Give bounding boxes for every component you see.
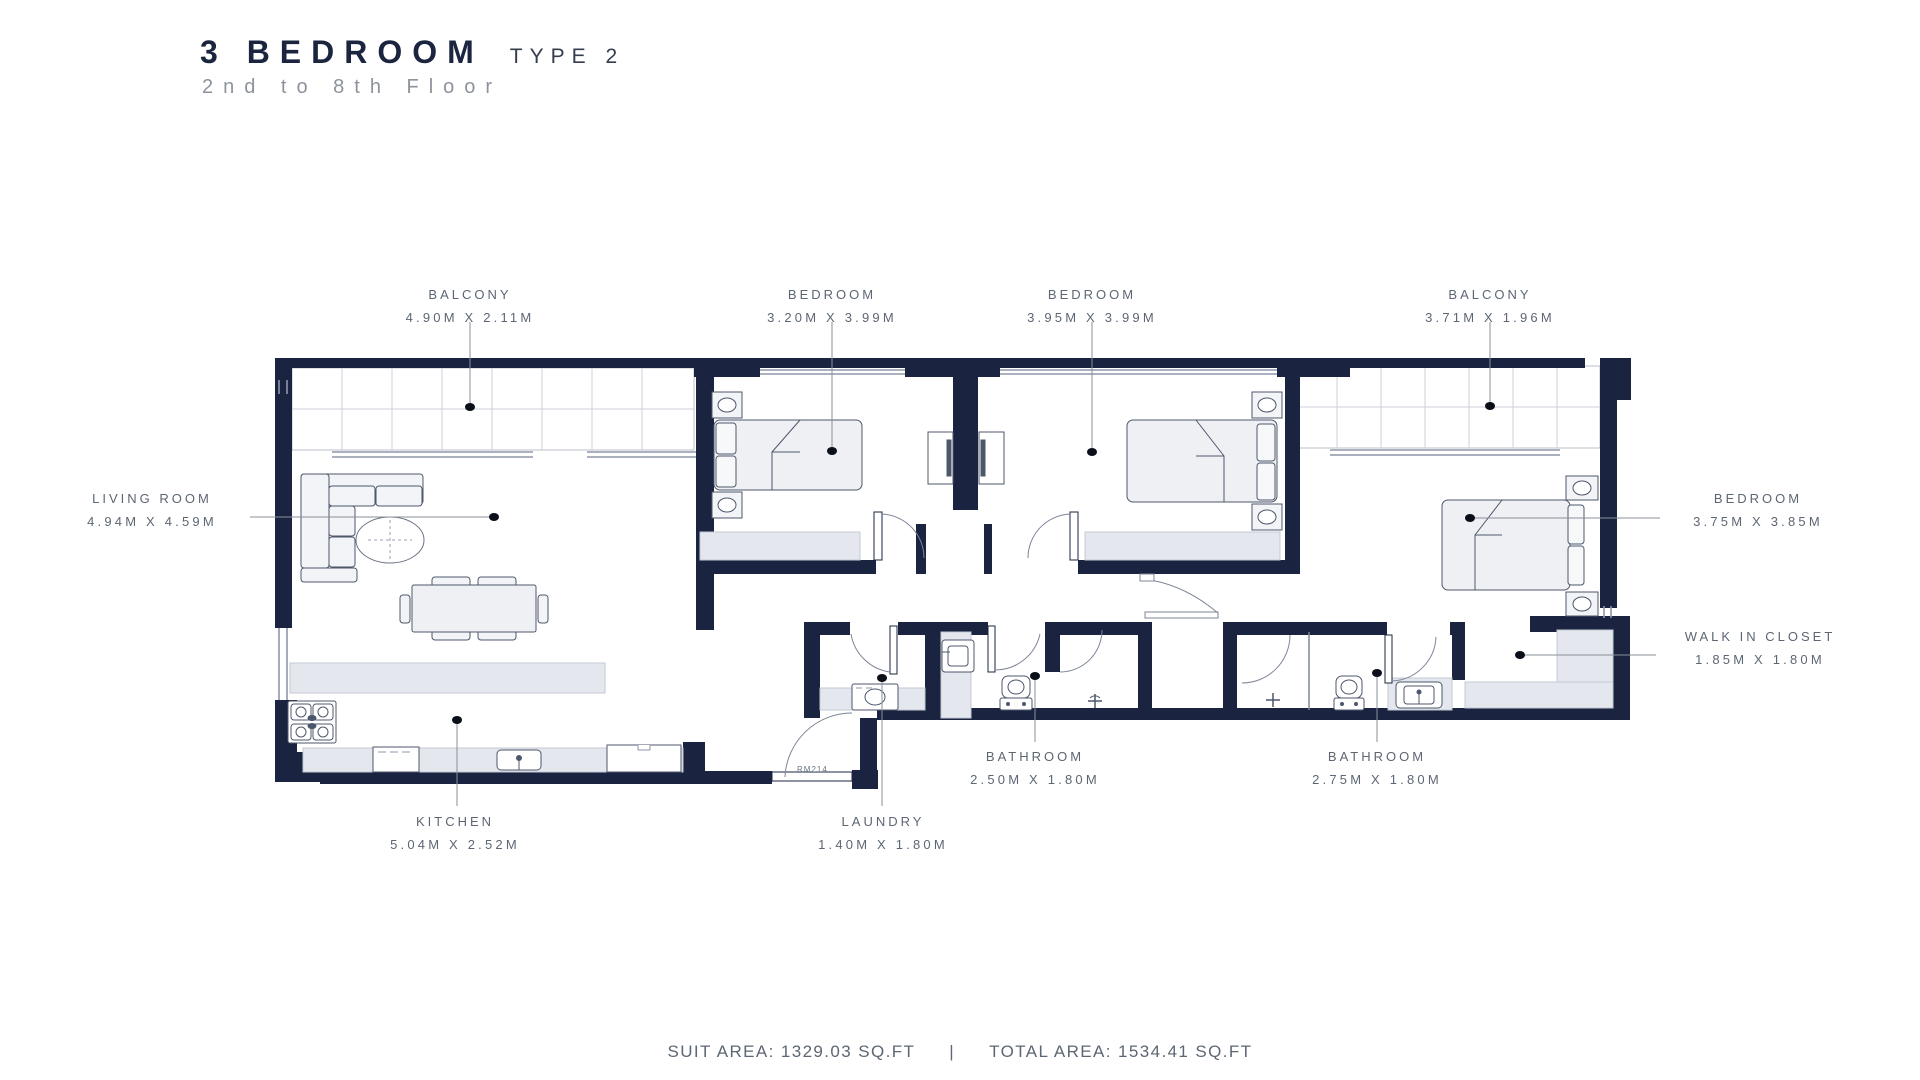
bed-icon [1442, 500, 1584, 590]
wardrobe [700, 532, 860, 560]
room-label-bedroom-1: BEDROOM 3.20M X 3.99M [692, 286, 972, 326]
washing-machine-icon [852, 684, 898, 710]
floor-plan-page: 3 BEDROOMTYPE 2 2nd to 8th Floor [0, 0, 1920, 1080]
room-label-living-room: LIVING ROOM 4.94M X 4.59M [32, 490, 272, 530]
floor-plan-drawing [0, 0, 1920, 1080]
dishwasher-icon [373, 747, 419, 772]
bedroom-2-furniture [979, 392, 1282, 560]
kitchen-sink-icon [497, 750, 541, 770]
wardrobe [1085, 532, 1280, 560]
coffee-table [356, 517, 424, 563]
tv [947, 440, 951, 476]
bed-icon [1127, 420, 1277, 502]
total-area-text: TOTAL AREA: 1534.41 SQ.FT [989, 1042, 1252, 1062]
room-label-balcony-2: BALCONY 3.71M X 1.96M [1350, 286, 1630, 326]
balcony-1-tiles [292, 368, 694, 450]
entrance-door-tag: RM214 [797, 765, 828, 774]
room-label-walk-in-closet: WALK IN CLOSET 1.85M X 1.80M [1630, 628, 1890, 668]
shower-drain-icon [1088, 694, 1102, 708]
toilet-icon [1000, 676, 1032, 710]
room-label-laundry: LAUNDRY 1.40M X 1.80M [763, 813, 1003, 853]
bathroom-sink-icon [1396, 682, 1442, 708]
kitchen-counters [288, 663, 683, 772]
footer-separator: | [949, 1042, 955, 1062]
dining-table [400, 577, 548, 640]
bathroom-2-fixtures [1242, 632, 1452, 710]
balcony-2-tiles [1293, 366, 1600, 448]
room-label-bedroom-2: BEDROOM 3.95M X 3.99M [952, 286, 1232, 326]
bedroom-3-furniture [1442, 476, 1598, 616]
bathroom-sink-icon [942, 640, 974, 672]
suit-area-text: SUIT AREA: 1329.03 SQ.FT [668, 1042, 916, 1062]
room-label-bedroom-3: BEDROOM 3.75M X 3.85M [1638, 490, 1878, 530]
bathroom-1-fixtures [941, 630, 1102, 718]
area-summary: SUIT AREA: 1329.03 SQ.FT | TOTAL AREA: 1… [0, 1042, 1920, 1062]
walk-in-closet-shelves [1465, 630, 1613, 708]
room-label-bathroom-2: BATHROOM 2.75M X 1.80M [1257, 748, 1497, 788]
shower-door-arc [1060, 630, 1102, 672]
shower-drain-icon [1266, 693, 1280, 707]
tv [981, 440, 985, 476]
fridge-icon [607, 745, 681, 772]
room-label-balcony-1: BALCONY 4.90M X 2.11M [330, 286, 610, 326]
cooktop-icon [288, 701, 336, 743]
shower-door-arc [1242, 635, 1290, 683]
room-label-kitchen: KITCHEN 5.04M X 2.52M [335, 813, 575, 853]
bed-icon [714, 420, 862, 490]
bedroom-1-furniture [700, 392, 953, 560]
toilet-icon [1334, 676, 1364, 710]
laundry-fixtures [820, 684, 925, 710]
room-label-bathroom-1: BATHROOM 2.50M X 1.80M [915, 748, 1155, 788]
